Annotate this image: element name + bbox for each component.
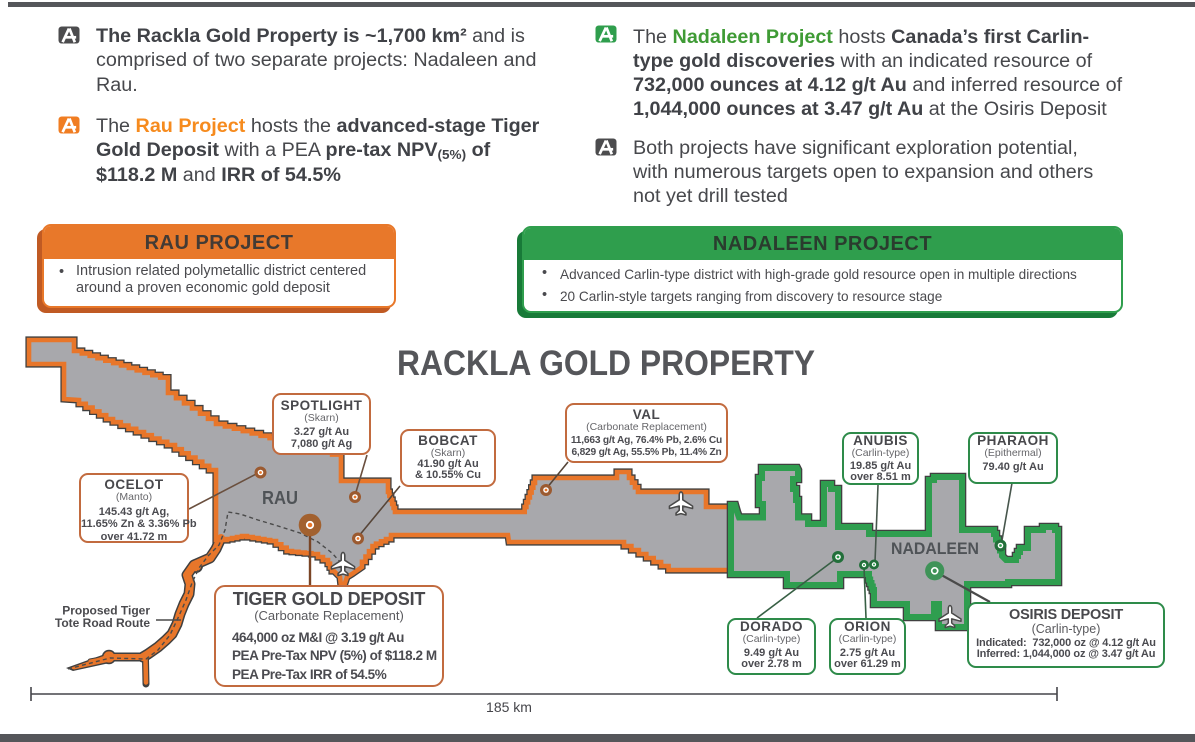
svg-text:NADALEEN: NADALEEN — [891, 540, 979, 558]
svg-text:185 km: 185 km — [486, 699, 532, 715]
svg-text:RACKLA GOLD PROPERTY: RACKLA GOLD PROPERTY — [397, 344, 815, 383]
svg-text:Tote Road Route: Tote Road Route — [55, 616, 150, 630]
svg-text:RAU: RAU — [262, 487, 298, 508]
